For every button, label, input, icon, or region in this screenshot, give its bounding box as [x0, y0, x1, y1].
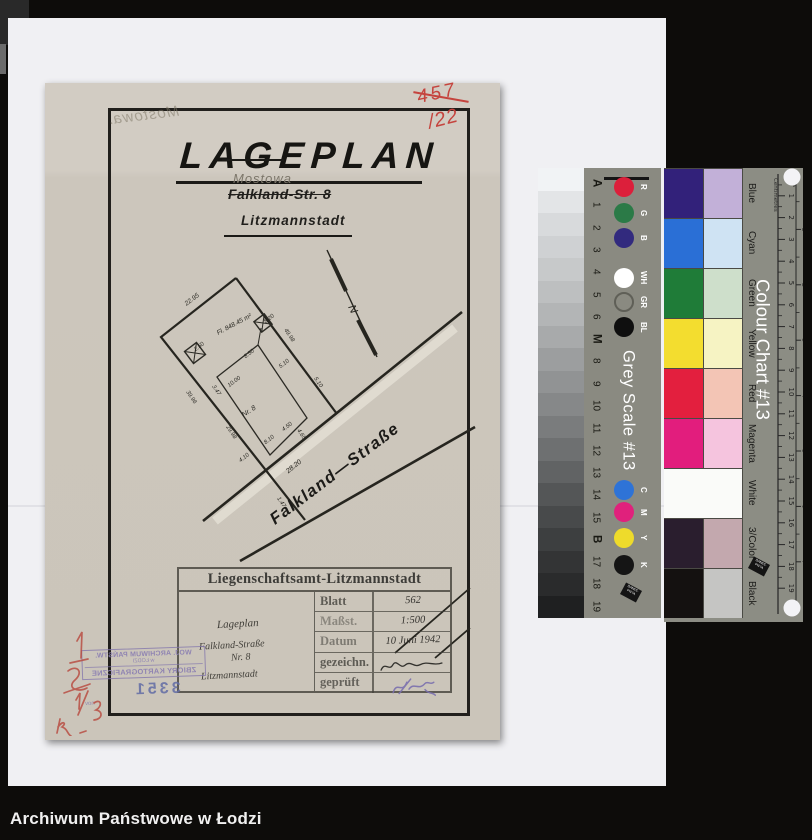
street-erasure-band	[215, 328, 455, 521]
title-block-row-label: gezeichn.	[320, 655, 369, 670]
title-block-row-value	[377, 675, 450, 702]
title-block-row: gezeichn.	[315, 653, 450, 673]
ruler: 123456789101112131415161718191234567Cent…	[770, 168, 803, 622]
title-block-column-divider	[372, 612, 374, 631]
dimension-label: 4.50	[281, 421, 294, 433]
cm-number: 3	[787, 237, 795, 241]
dimension-label: 5.10	[278, 358, 291, 370]
dimension-label: 8.50	[243, 348, 256, 360]
dimension-label: 10.00	[227, 375, 243, 389]
title-block-rows: Blatt562Maßst.1:500Datum10 Juni 1942geze…	[315, 592, 450, 691]
cm-number: 7	[787, 324, 795, 328]
gr-patch-label: GR	[637, 294, 649, 310]
punch-hole-top	[784, 169, 801, 186]
cm-number: 10	[787, 388, 795, 397]
grey-scale-patches: RGBWHGRBLCMYK	[538, 168, 661, 618]
cm-number: 19	[787, 584, 795, 593]
dimension-label: Fl. 848.45 m²	[216, 312, 254, 337]
y-patch-circle	[614, 528, 634, 548]
dimension-label: Nr. 8	[241, 405, 257, 419]
title-block-description-line: Nr. 8	[231, 651, 251, 663]
inch-number: 2	[801, 283, 804, 287]
black-row-label: Black	[744, 568, 758, 618]
lageplan-document: Mostowa. LAGEPLAN Mostowa Falkland-Str. …	[45, 83, 500, 740]
title-block-row: Blatt562	[315, 592, 450, 612]
title-block-column-divider	[372, 592, 374, 611]
inch-number: 5	[801, 449, 804, 453]
cyan-row-label: Cyan	[744, 218, 758, 268]
cm-number: 6	[787, 303, 795, 308]
cm-number: 18	[787, 562, 795, 571]
bl-patch-circle	[614, 317, 634, 337]
title-block-row-label: geprüft	[320, 675, 360, 690]
dimension-label: 4.10	[238, 452, 251, 464]
title-block-header: Liegenschaftsamt-Litzmannstadt	[179, 569, 450, 592]
dimension-label: 22.95	[183, 292, 201, 308]
title-block-column-divider	[372, 632, 374, 651]
k-patch-circle	[614, 555, 634, 575]
cm-number: 14	[787, 475, 795, 484]
cm-number: 8	[787, 346, 795, 350]
gr-patch-circle	[614, 292, 634, 312]
title-block-row-value: 10 Juni 1942	[377, 634, 449, 648]
y-patch-label: Y	[637, 530, 649, 546]
colour-chart-card: BlueCyanGreenYellowRedMagentaWhite3/Colo…	[664, 168, 803, 622]
title-block-row-label: Datum	[320, 634, 357, 649]
m-patch-label: M	[637, 504, 649, 520]
title-block-row: geprüft	[315, 673, 450, 693]
cm-number: 5	[787, 281, 795, 285]
inch-number: 1	[801, 227, 804, 231]
c-patch-label: C	[637, 482, 649, 498]
r-patch-circle	[614, 177, 634, 197]
magenta-row-label: Magenta	[744, 418, 758, 468]
dimension-label: 8.10	[263, 434, 276, 446]
title-block-row: Datum10 Juni 1942	[315, 632, 450, 652]
title-block-table: Liegenschaftsamt-Litzmannstadt LageplanF…	[177, 567, 452, 693]
grey-scale-card: A123456M89101112131415B171819 RGBWHGRBLC…	[538, 168, 661, 618]
r-patch-label: R	[637, 179, 649, 195]
blue-row-label: Blue	[744, 168, 758, 218]
title-block-description-line: Falkland-Straße	[199, 638, 265, 652]
inch-number: 4	[801, 394, 804, 398]
street-label: Falkland—Straße	[267, 419, 403, 528]
gezeichnet-signature	[378, 654, 449, 674]
cm-number: 4	[787, 259, 795, 264]
geprueft-signature	[385, 675, 442, 699]
title-block-row-label: Maßst.	[320, 614, 357, 629]
wh-patch-circle	[614, 268, 634, 288]
title-block-column-divider	[372, 673, 374, 693]
m-patch-circle	[614, 502, 634, 522]
grey-scale-title: Grey Scale #13	[616, 343, 640, 478]
title-block-description-line: Litzmannstadt	[201, 669, 258, 683]
k-patch-label: K	[637, 557, 649, 573]
white-row-label: White	[744, 468, 758, 518]
cm-number: 1	[787, 194, 795, 198]
inch-number: 6	[801, 504, 804, 508]
dimension-labels: 22.95Fl. 848.45 m²8.202.508.505.1010.004…	[183, 292, 324, 510]
cm-number: 15	[787, 497, 795, 506]
street-edge-upper	[203, 312, 462, 521]
dimension-label: 3.47	[210, 384, 222, 397]
archive-scan-stage: Mostowa. LAGEPLAN Mostowa Falkland-Str. …	[0, 0, 812, 840]
cm-number: 13	[787, 453, 795, 462]
g-patch-circle	[614, 203, 634, 223]
g-patch-label: G	[637, 205, 649, 221]
cm-number: 17	[787, 540, 795, 549]
cm-number: 2	[787, 215, 795, 219]
bl-patch-label: BL	[637, 319, 649, 335]
north-arrow: N	[327, 250, 377, 357]
title-block-description-line: Lageplan	[217, 617, 259, 631]
red-pencil-scribbles	[50, 621, 120, 736]
title-block-row-label: Blatt	[320, 594, 346, 609]
title-block-column-divider	[372, 653, 374, 672]
parcel-boundary-left	[161, 278, 305, 520]
cm-number: 11	[787, 409, 795, 418]
title-block-row: Maßst.1:500	[315, 612, 450, 632]
inch-number: 7	[801, 560, 804, 564]
title-block-row-value: 1:500	[377, 614, 449, 628]
wh-patch-label: WH	[637, 270, 649, 286]
scan-edge-artifact	[0, 44, 6, 74]
colour-chart-title: Colour Chart #13	[752, 274, 772, 424]
punch-hole-bottom	[784, 600, 801, 617]
cm-number: 16	[787, 518, 795, 527]
cm-number: 9	[787, 368, 795, 372]
inner-parcel-outline	[217, 345, 307, 455]
title-block-row-value: 562	[377, 594, 449, 608]
c-patch-circle	[614, 480, 634, 500]
inch-number: 3	[801, 338, 804, 342]
parcel-boundary-right	[236, 278, 337, 414]
b-patch-label: B	[637, 230, 649, 246]
archive-caption: Archiwum Państwowe w Łodzi	[10, 809, 262, 829]
b-patch-circle	[614, 228, 634, 248]
centimetres-label: Centimetres	[772, 178, 778, 212]
dimension-label: 39.96	[184, 390, 198, 406]
cm-number: 12	[787, 431, 795, 440]
